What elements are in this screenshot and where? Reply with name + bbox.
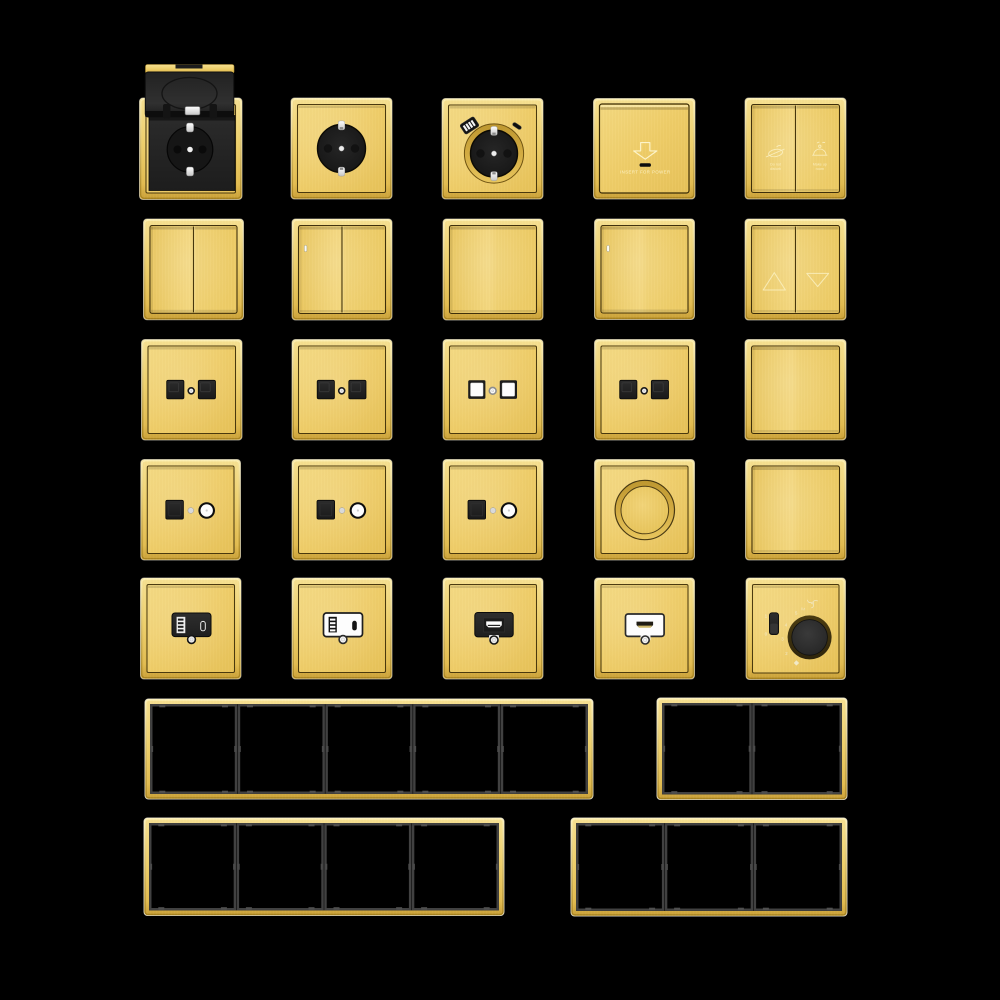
svg-text:room: room (816, 167, 824, 171)
svg-text:disturb: disturb (770, 167, 781, 171)
svg-text:Do not: Do not (770, 163, 781, 167)
svg-text:Make up: Make up (813, 163, 827, 167)
svg-text:INSERT FOR POWER: INSERT FOR POWER (620, 170, 671, 175)
svg-text:1: 1 (765, 614, 768, 619)
svg-text:0: 0 (765, 631, 768, 636)
